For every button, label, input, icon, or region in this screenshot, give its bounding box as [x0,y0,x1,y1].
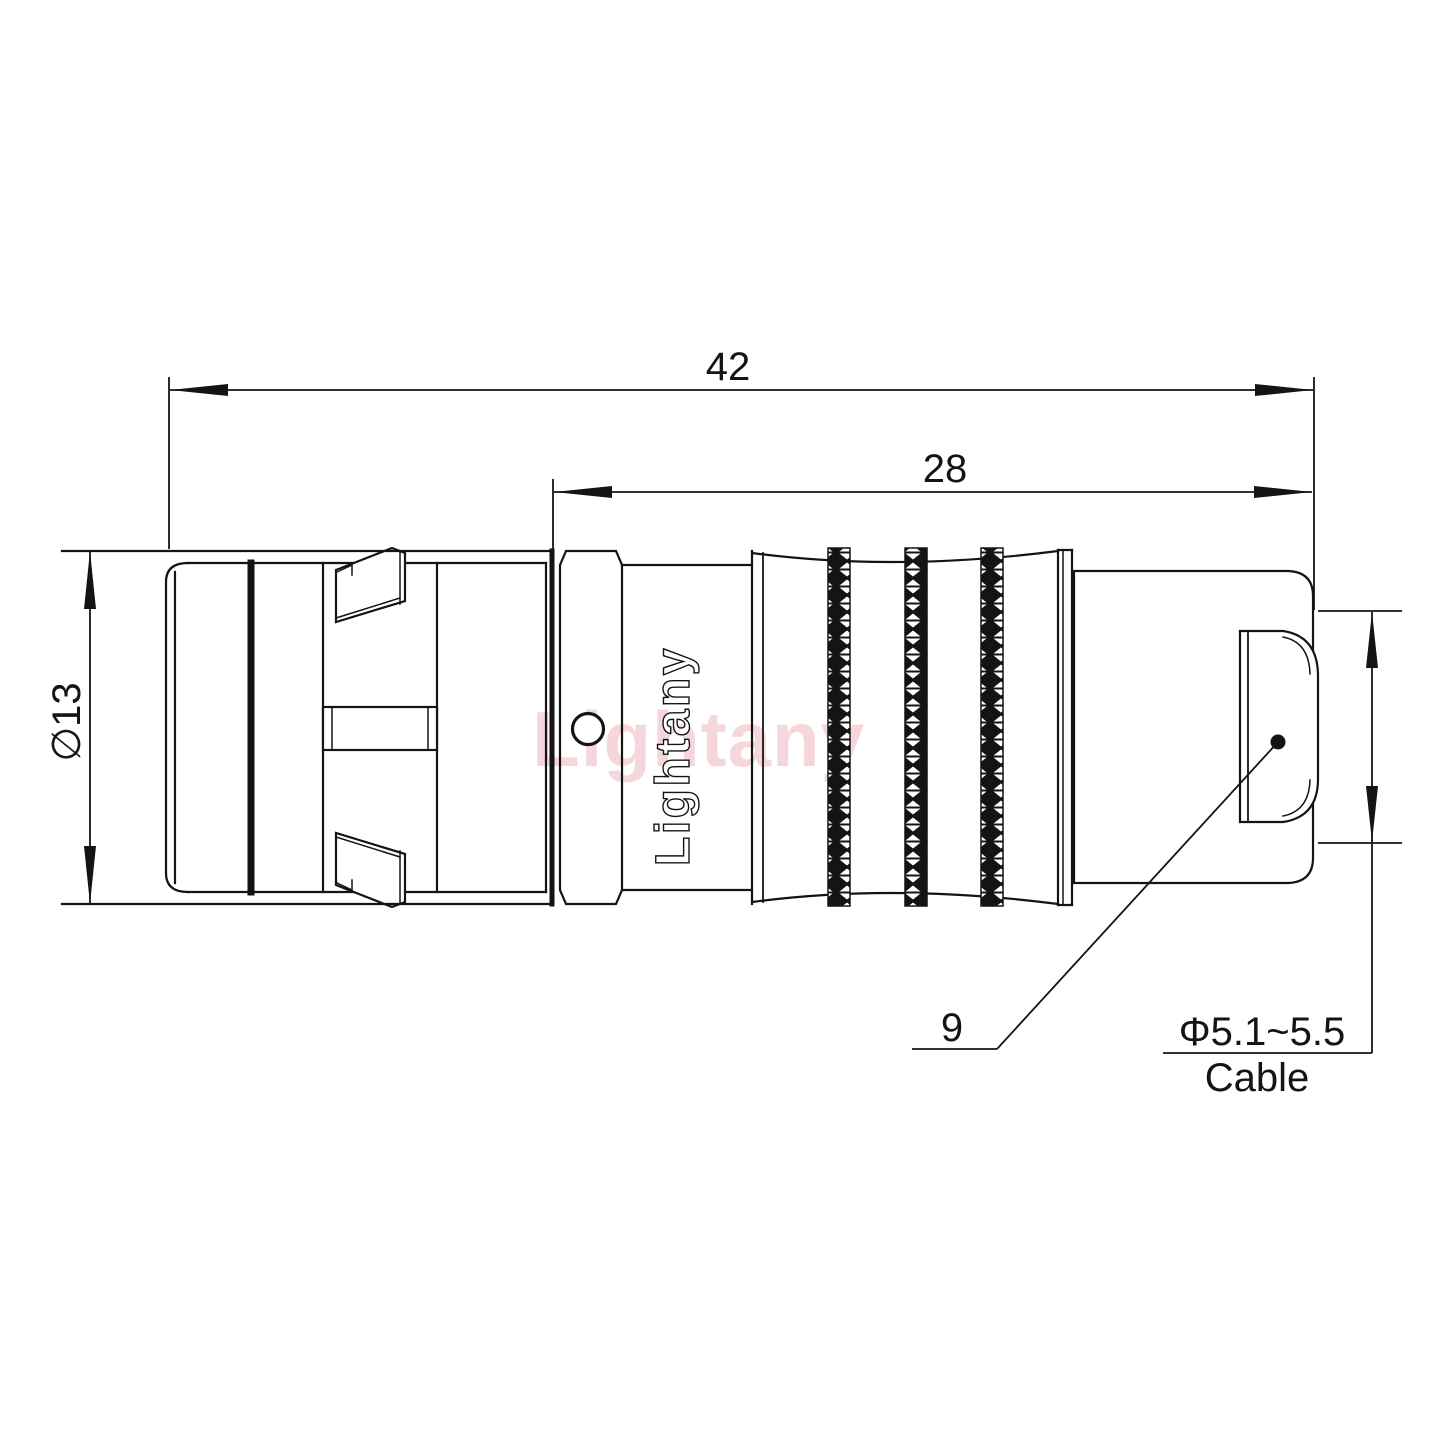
dim-arrow-right [1255,384,1313,396]
dim-overall-length-value: 42 [706,345,751,389]
side-slot-window [323,707,437,750]
dim-arrow-up [84,551,96,609]
knurl-band-1 [828,548,850,906]
locking-tab-bottom [336,833,405,907]
cable-bushing [1240,631,1318,822]
dim-arrow-down [84,846,96,904]
cable-word-label: Cable [1205,1056,1310,1100]
dim-arrow-down [1366,786,1378,842]
cable-range-label: Φ5.1~5.5 [1179,1010,1345,1054]
dim-arrow-left [554,486,612,498]
dim-diameter-value: ∅13 [45,682,89,761]
dim-arrow-up [1366,612,1378,668]
rear-nut-value: 9 [941,1006,963,1050]
knurl-band-2 [905,548,927,906]
knurl-band-3 [981,548,1003,906]
locking-tab-top [336,548,405,622]
dim-diameter: ∅13 [45,551,96,904]
dim-arrow-right [1254,486,1312,498]
collar-hole [573,714,604,745]
dim-rear-length: 28 [553,447,1312,558]
dim-rear-length-value: 28 [923,447,968,491]
engraving-text: Lightany [647,646,700,866]
connector-technical-drawing: Lightany [0,0,1440,1440]
dim-arrow-left [170,384,228,396]
front-cap-outline [166,563,188,892]
